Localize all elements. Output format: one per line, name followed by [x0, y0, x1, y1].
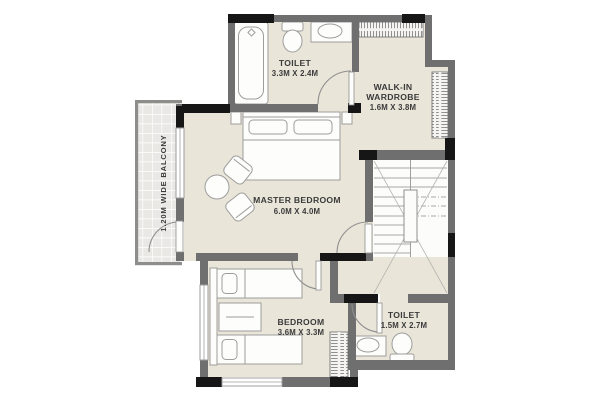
- toilet-top-label: TOILET: [279, 58, 312, 68]
- master-bed: [243, 112, 340, 180]
- pillow: [249, 120, 287, 134]
- wardrobe-label-line2: WARDROBE: [366, 92, 419, 102]
- wardrobe-label-line1: WALK-IN: [374, 82, 413, 92]
- wall-toilet-wardrobe: [352, 15, 359, 72]
- wall-toilet-bottom-left: [348, 303, 356, 360]
- toilet-bottom-dims: 1.5M X 2.7M: [381, 321, 427, 330]
- round-table: [205, 175, 229, 199]
- bedroom-bottom-window: [222, 378, 282, 386]
- walkin-wardrobe-top-unit: [359, 22, 423, 37]
- balcony-rail-bottom: [135, 262, 182, 265]
- wall-master-left-c: [176, 252, 184, 261]
- sink-bottom: [352, 336, 386, 356]
- wall-wardrobe-right-upper: [425, 15, 432, 62]
- bedroom-side-window: [200, 285, 208, 360]
- wall-toilet-left: [228, 15, 235, 112]
- toilet-top-dims: 3.3M X 2.4M: [272, 69, 318, 78]
- bathtub: [234, 22, 268, 104]
- balcony-rail-left: [135, 100, 138, 265]
- wall-bedroom-left-a: [200, 261, 208, 285]
- toilet-bottom-door-gap: [380, 294, 408, 303]
- wc-top: [282, 22, 303, 52]
- pillow: [222, 274, 237, 294]
- nightstand-right: [342, 112, 352, 124]
- balcony-tiles: [137, 102, 179, 263]
- single-bed: [217, 269, 302, 298]
- floor-plan-canvas: TOILET 3.3M X 2.4M WALK-IN WARDROBE 1.6M…: [0, 0, 600, 400]
- wall-toilet-bottom-top-a: [330, 294, 344, 303]
- nightstand-left: [231, 112, 241, 124]
- hallway-floor: [338, 257, 448, 294]
- bedroom-label: BEDROOM: [278, 317, 325, 327]
- wall-master-bedroom-divider: [196, 253, 298, 261]
- wall-bedroom-bottom: [282, 377, 330, 387]
- pillow: [294, 120, 332, 134]
- wall-bedroom-hall: [330, 261, 338, 294]
- wardrobe-dims: 1.6M X 3.8M: [370, 103, 416, 112]
- floor-plan-svg: TOILET 3.3M X 2.4M WALK-IN WARDROBE 1.6M…: [0, 0, 600, 400]
- bedroom-dims: 3.6M X 3.3M: [278, 328, 324, 337]
- wall-toilet-bottom-top-b: [408, 294, 448, 303]
- walkin-wardrobe-side-unit: [432, 72, 448, 138]
- bedroom-wardrobe-unit: [330, 332, 348, 377]
- balcony-label: 1.20M WIDE BALCONY: [159, 134, 168, 231]
- wall-stub-join: [350, 370, 358, 378]
- master-bedroom-label: MASTER BEDROOM: [253, 195, 341, 205]
- stair-newel: [404, 190, 417, 242]
- wc-bottom: [390, 333, 414, 361]
- wall-toilet-bottom-bottom: [348, 360, 455, 370]
- wall-right: [448, 60, 455, 370]
- pillow: [222, 340, 237, 360]
- master-window: [176, 128, 184, 198]
- headboard: [210, 268, 217, 365]
- wall-master-left-b: [176, 198, 184, 222]
- toilet-bottom-label: TOILET: [388, 310, 421, 320]
- master-bedroom-dims: 6.0M X 4.0M: [274, 207, 320, 216]
- sink-top: [311, 22, 352, 42]
- balcony-rail-top: [135, 100, 182, 103]
- single-bed: [217, 335, 302, 364]
- wall-stairs-left: [365, 160, 373, 222]
